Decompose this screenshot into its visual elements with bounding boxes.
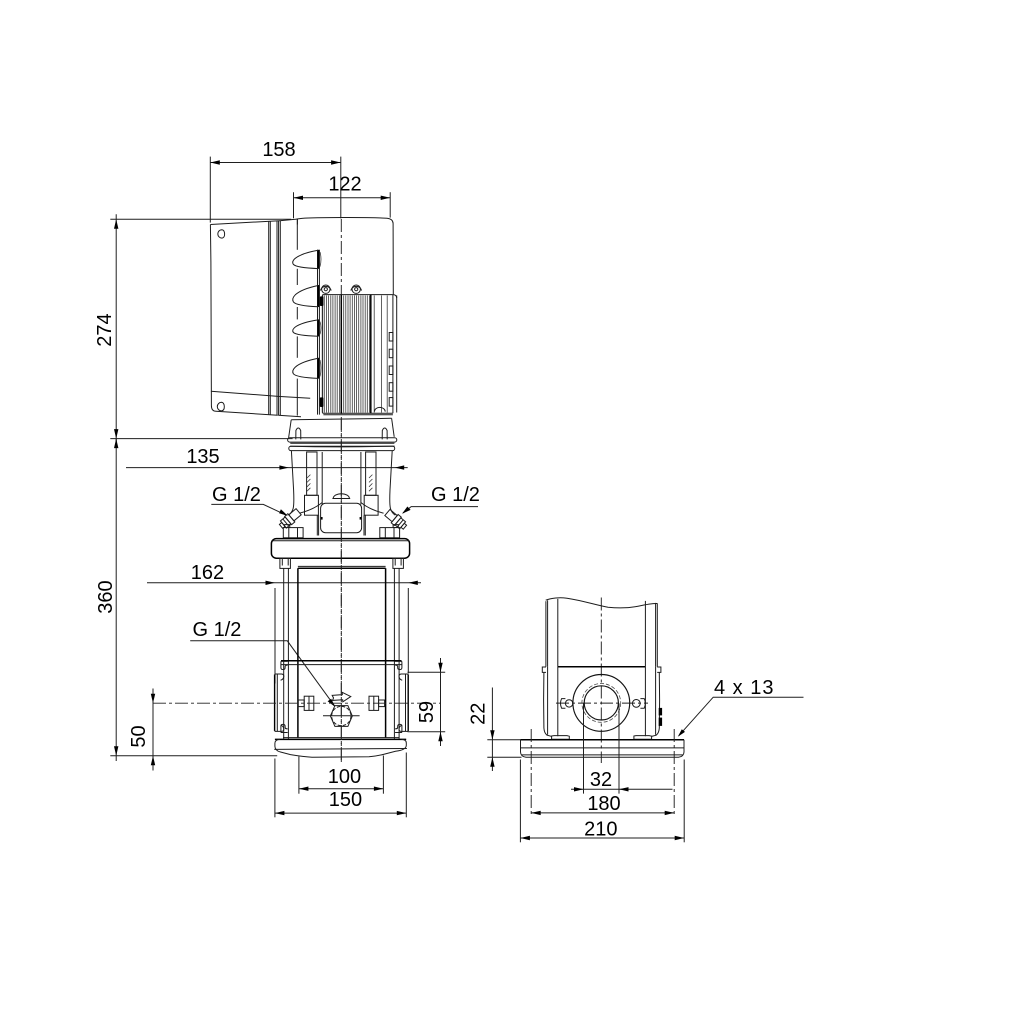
svg-text:360: 360 bbox=[95, 580, 117, 613]
svg-text:22: 22 bbox=[467, 703, 489, 725]
svg-text:100: 100 bbox=[328, 766, 361, 788]
svg-text:210: 210 bbox=[584, 819, 617, 841]
svg-text:162: 162 bbox=[191, 562, 224, 584]
svg-text:4 x 13: 4 x 13 bbox=[714, 677, 774, 699]
svg-text:150: 150 bbox=[329, 789, 362, 811]
svg-text:G 1/2: G 1/2 bbox=[431, 484, 480, 506]
svg-text:122: 122 bbox=[328, 174, 361, 196]
svg-text:135: 135 bbox=[186, 446, 219, 468]
svg-text:50: 50 bbox=[128, 725, 150, 747]
svg-text:G 1/2: G 1/2 bbox=[212, 484, 261, 506]
svg-text:274: 274 bbox=[94, 313, 116, 346]
svg-text:59: 59 bbox=[416, 701, 438, 723]
svg-text:32: 32 bbox=[590, 769, 612, 791]
svg-text:G 1/2: G 1/2 bbox=[193, 619, 242, 641]
svg-text:158: 158 bbox=[262, 139, 295, 161]
svg-text:180: 180 bbox=[587, 793, 620, 815]
